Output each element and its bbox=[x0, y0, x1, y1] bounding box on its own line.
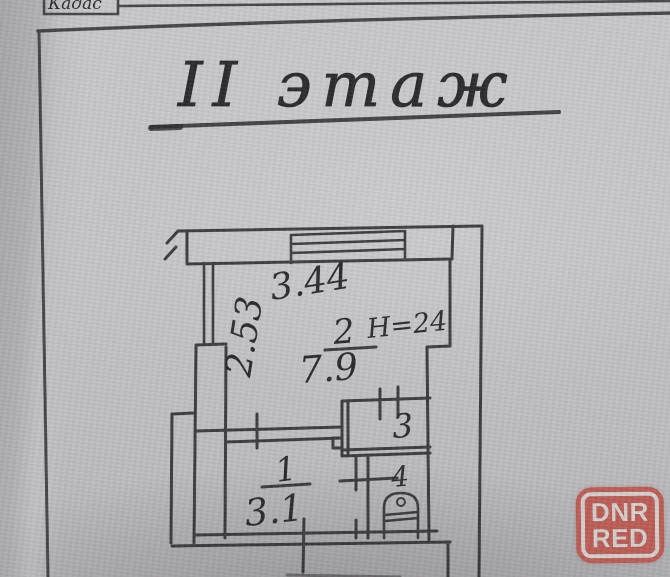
floor-title: II этаж bbox=[151, 48, 559, 128]
title-underline-start bbox=[151, 127, 180, 128]
room2-area-label: 7.9 bbox=[298, 345, 360, 392]
watermark-line1: DNR bbox=[591, 500, 649, 525]
balcony-walls bbox=[165, 226, 482, 264]
room3-number-label: 3 bbox=[391, 406, 415, 446]
header-table-line bbox=[118, 1, 670, 6]
left-window-icon bbox=[204, 263, 213, 344]
watermark-line2: RED bbox=[592, 525, 649, 550]
bottom-walls bbox=[172, 519, 450, 577]
scanned-floorplan-photo: Кадас II этаж bbox=[0, 0, 670, 577]
toilet-flush-icon bbox=[397, 498, 405, 506]
dnr-red-watermark: DNR RED bbox=[576, 487, 665, 564]
room1-room2-divider bbox=[196, 414, 342, 448]
room2-height-note: Н=24 bbox=[364, 306, 448, 345]
room1-number-label: 1 bbox=[273, 448, 299, 490]
building-outer-wall bbox=[479, 226, 482, 577]
balcony-window-icon bbox=[291, 231, 405, 263]
frame-left-border bbox=[39, 31, 48, 577]
dnr-red-badge-inner: DNR RED bbox=[581, 492, 660, 559]
room1-area-label: 3.1 bbox=[242, 486, 305, 535]
dimension-left-label: 2.53 bbox=[218, 294, 271, 381]
plan-labels: 3.44 2.53 2 7.9 Н=24 3 1 3.1 4 bbox=[218, 256, 449, 535]
dimension-top-label: 3.44 bbox=[267, 256, 353, 309]
header-partial-text: Кадас bbox=[47, 0, 102, 14]
right-walls bbox=[427, 260, 450, 540]
floor-title-text: II этаж bbox=[177, 48, 518, 121]
floorplan-drawing: Кадас II этаж bbox=[0, 0, 670, 577]
room4-number-label: 4 bbox=[389, 460, 411, 495]
frame-top-border bbox=[38, 13, 670, 31]
room3-walls bbox=[333, 387, 430, 456]
